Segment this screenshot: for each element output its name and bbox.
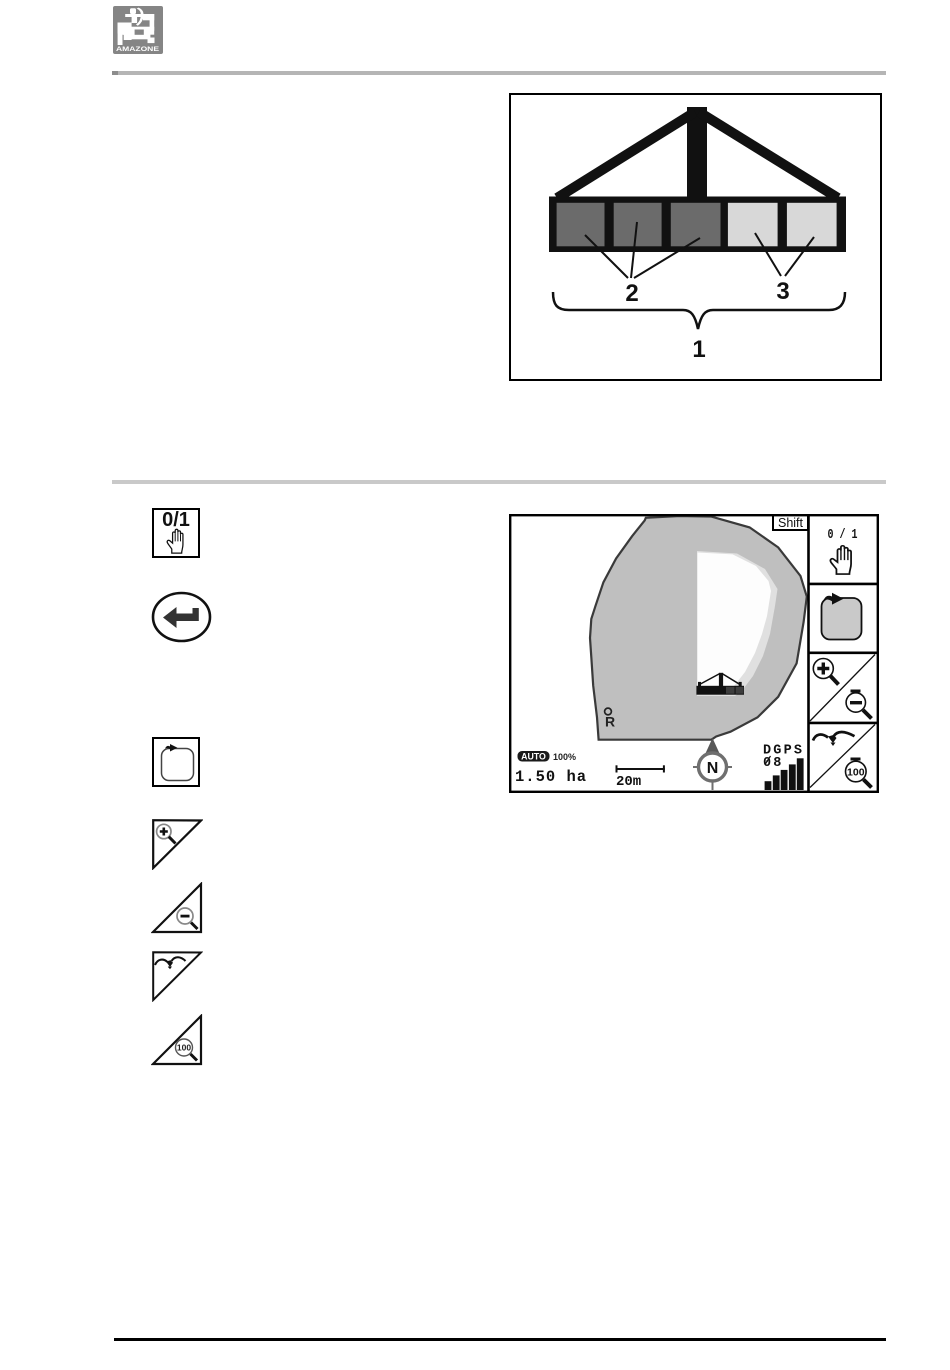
svg-text:AMAZONE: AMAZONE [116,46,160,53]
svg-text:1.50 ha: 1.50 ha [515,768,587,786]
svg-text:N: N [707,760,719,777]
svg-text:AUTO: AUTO [521,752,546,762]
svg-text:20m: 20m [616,774,641,790]
svg-text:3: 3 [776,278,789,305]
svg-text:100: 100 [847,767,865,779]
svg-text:R: R [605,714,615,730]
svg-text:100%: 100% [553,752,576,762]
svg-text:0 / 1: 0 / 1 [828,527,858,543]
svg-text:Shift: Shift [778,516,804,530]
svg-text:1: 1 [692,336,705,363]
svg-text:100: 100 [177,1043,191,1053]
svg-text:2: 2 [625,280,638,307]
